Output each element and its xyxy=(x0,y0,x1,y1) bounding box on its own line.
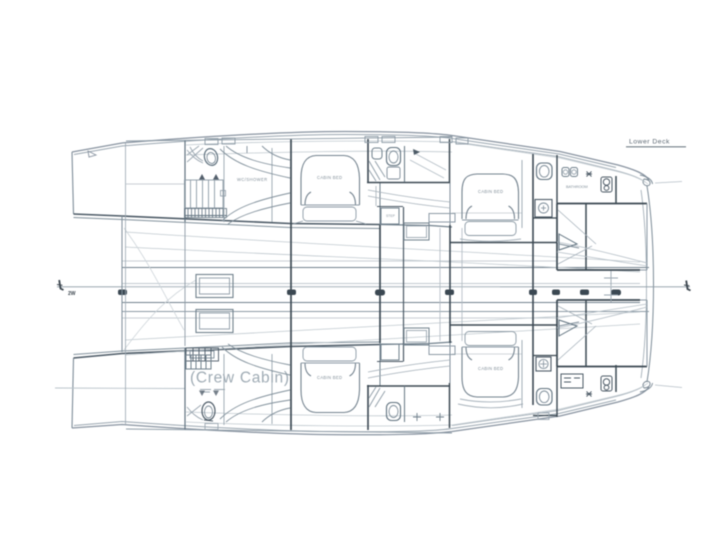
svg-text:CABIN BED: CABIN BED xyxy=(317,175,342,180)
svg-text:CABIN BED: CABIN BED xyxy=(317,375,342,380)
svg-text:Lower Deck: Lower Deck xyxy=(629,139,670,146)
svg-text:CABIN BED: CABIN BED xyxy=(478,189,503,194)
svg-text:2W: 2W xyxy=(68,291,76,297)
svg-text:CABIN BED: CABIN BED xyxy=(478,366,503,371)
svg-text:BATHROOM: BATHROOM xyxy=(566,185,588,189)
svg-text:STEP: STEP xyxy=(386,214,396,218)
svg-text:(Crew Cabin): (Crew Cabin) xyxy=(190,370,290,387)
svg-text:WC/SHOWER: WC/SHOWER xyxy=(237,177,268,182)
